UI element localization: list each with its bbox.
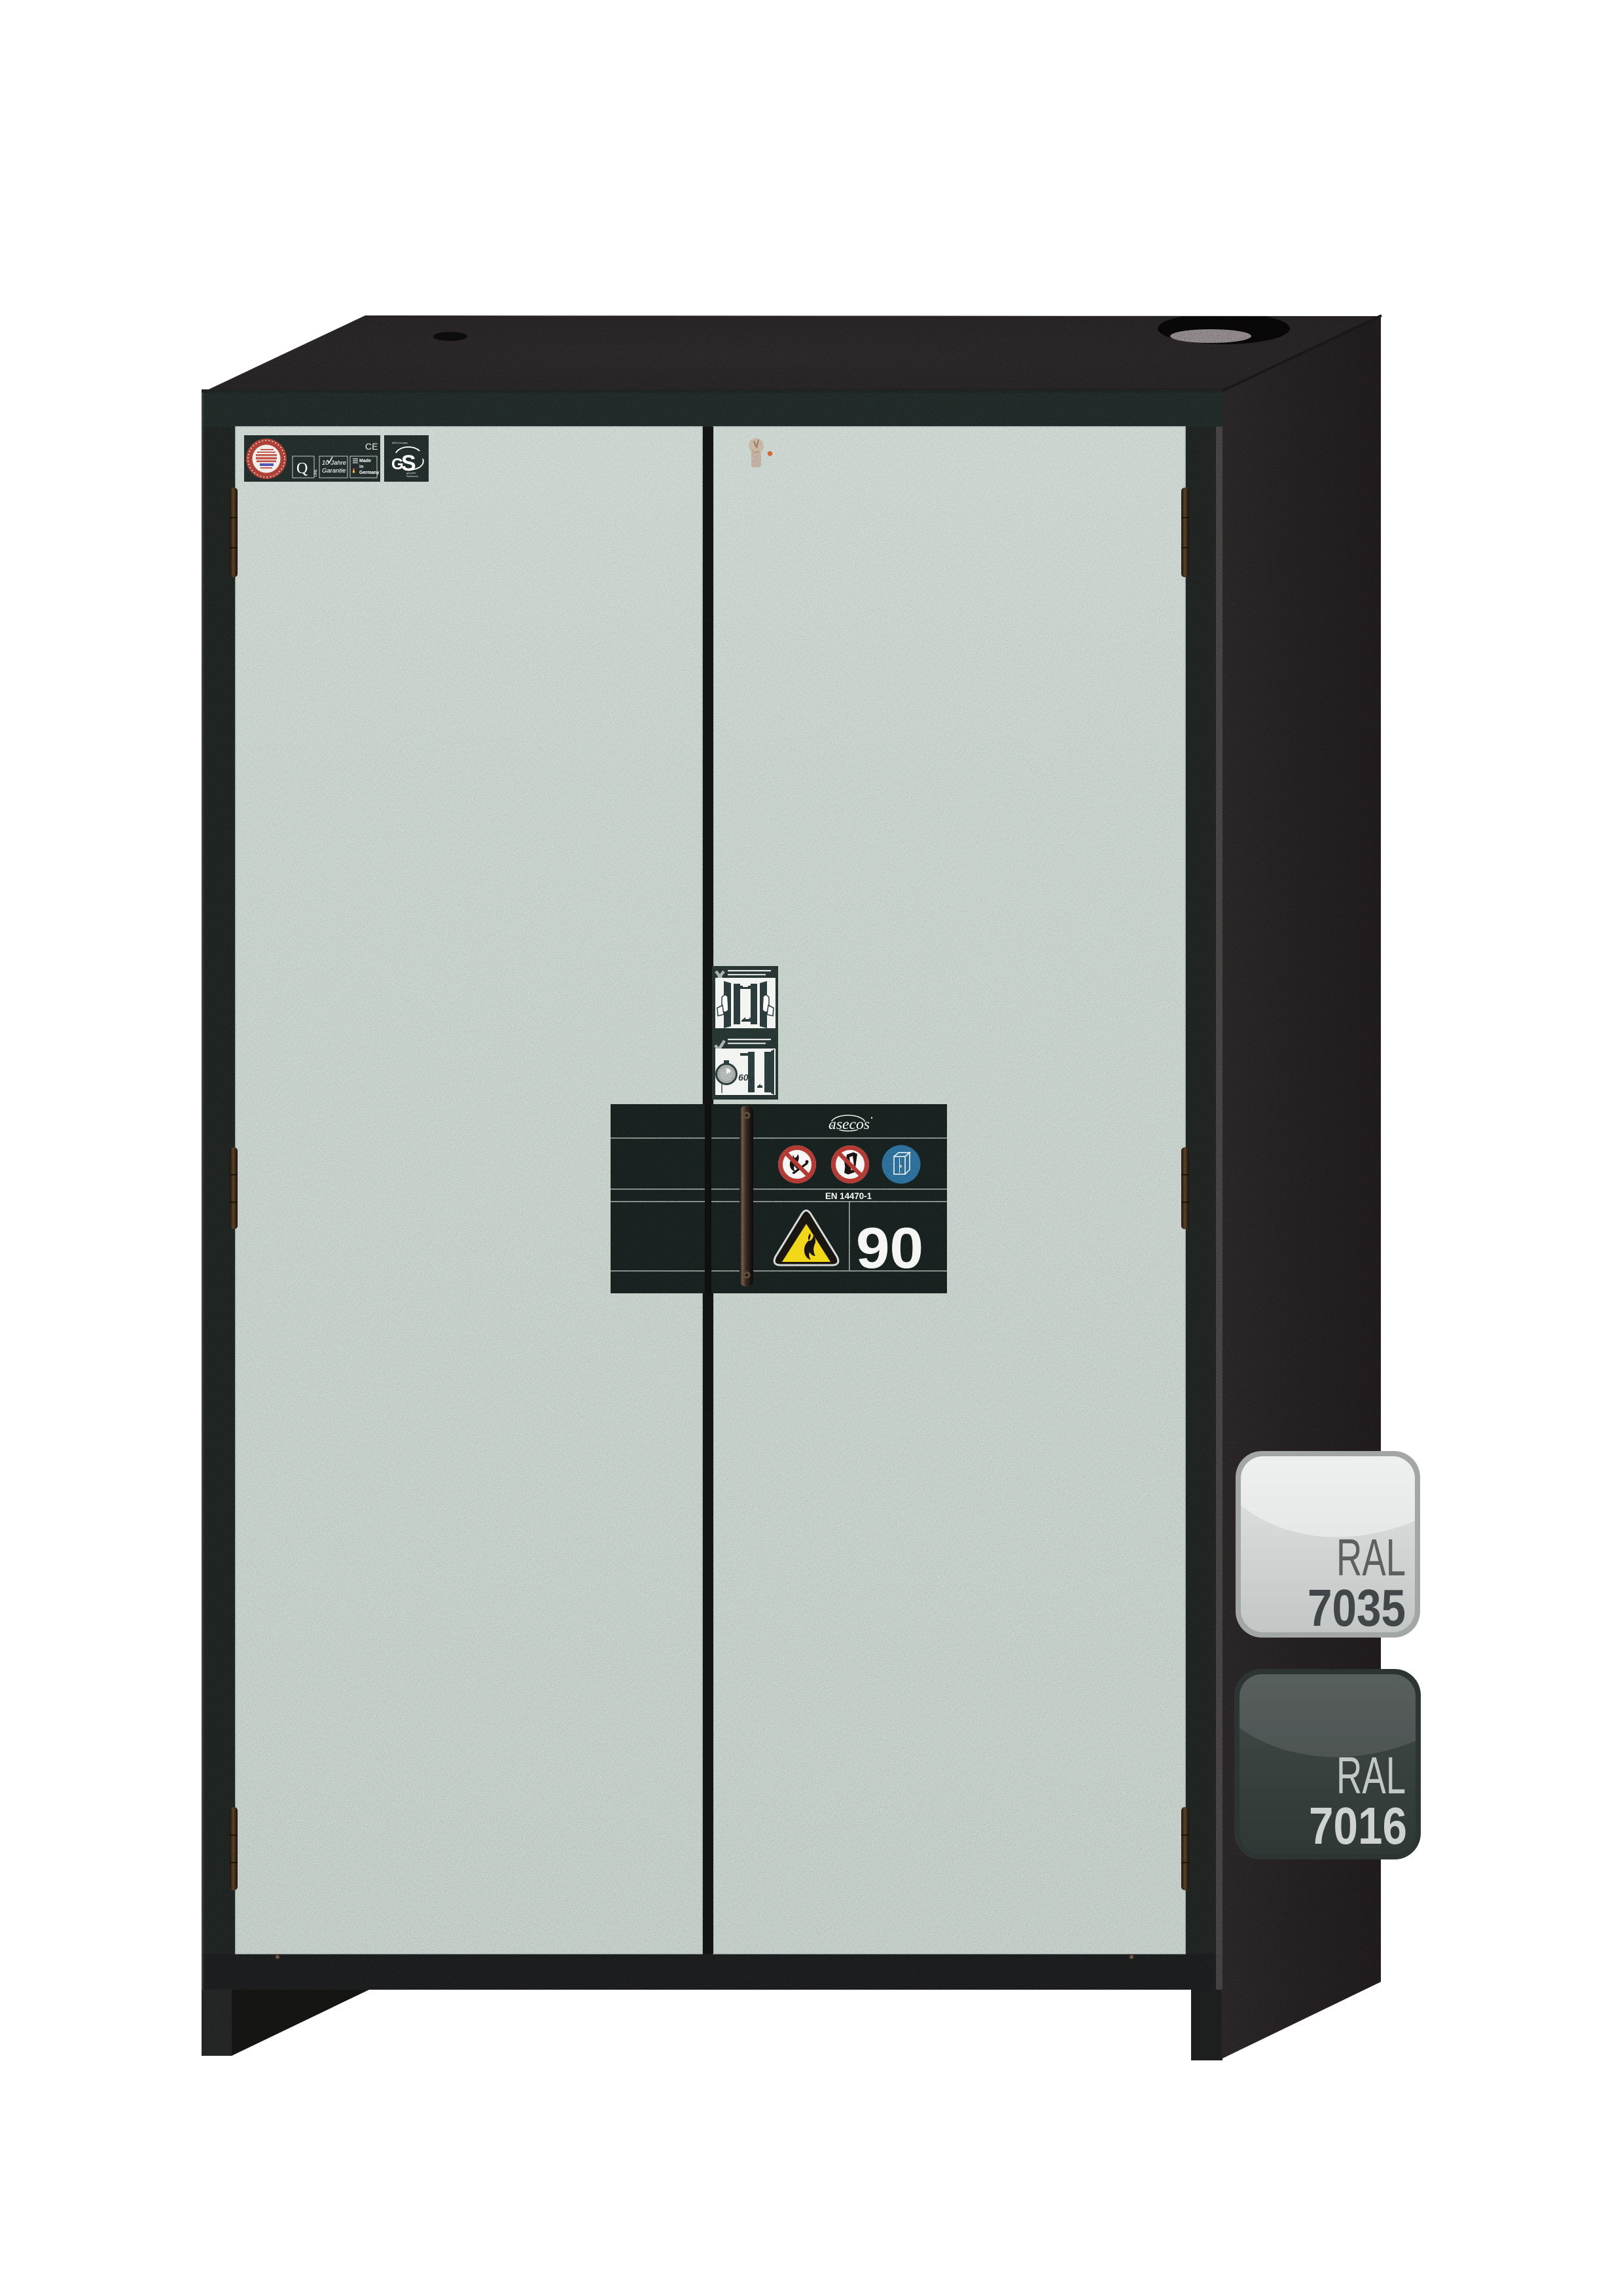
svg-text:7016: 7016 [1309, 1797, 1407, 1855]
svg-text:RAL: RAL [1336, 1746, 1406, 1804]
svg-text:7035: 7035 [1308, 1579, 1406, 1637]
svg-text:RAL: RAL [1336, 1528, 1406, 1587]
